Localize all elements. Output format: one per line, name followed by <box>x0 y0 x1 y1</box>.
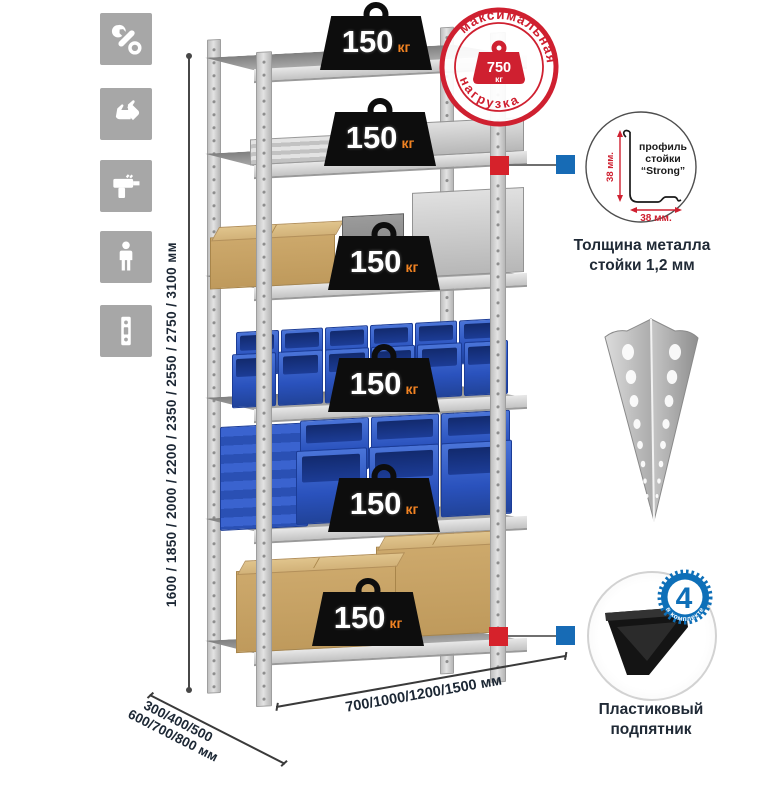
gloves-icon <box>100 88 152 140</box>
quantity-badge: 4 в комплекте <box>656 568 714 626</box>
corner-post-image <box>597 307 709 535</box>
callout-leader-top <box>500 164 560 166</box>
shelf-load-badge: 150кг <box>328 478 440 532</box>
svg-text:38 мм.: 38 мм. <box>605 152 616 182</box>
callout-red-square-top <box>490 156 509 175</box>
svg-text:“Strong”: “Strong” <box>641 165 685 177</box>
person-icon <box>100 231 152 283</box>
callout-blue-square-bottom <box>556 626 575 645</box>
height-dimension-line <box>188 56 190 690</box>
drill-icon <box>100 160 152 212</box>
shelf-load-badge: 150кг <box>328 358 440 412</box>
shelf-load-badge: 150кг <box>320 16 432 70</box>
wrench-icon <box>100 13 152 65</box>
rack-post-rear-left <box>207 39 221 694</box>
callout-red-square-bottom <box>489 627 508 646</box>
profile-title: профиль стойки “Strong” <box>639 141 687 177</box>
shelf-load-badge: 150кг <box>312 592 424 646</box>
svg-text:4: 4 <box>676 582 693 615</box>
shelf-load-badge: 150кг <box>328 236 440 290</box>
perforated-post-icon <box>100 305 152 357</box>
callout-leader-bottom <box>500 635 560 637</box>
product-infographic: { "colors": { "accent_red": "#d6222b", "… <box>0 0 765 765</box>
svg-text:кг: кг <box>495 74 503 84</box>
callout-blue-square-top <box>556 155 575 174</box>
plastic-foot-caption: Пластиковый подпятник <box>576 700 726 740</box>
svg-text:профиль: профиль <box>639 141 687 153</box>
shelf-load-badge: 150кг <box>324 112 436 166</box>
profile-caption: Толщина металла стойки 1,2 мм <box>566 236 718 276</box>
rack-post-front-left <box>256 51 272 707</box>
svg-text:38 мм.: 38 мм. <box>640 213 672 224</box>
height-dimension-label: 1600 / 1850 / 2000 / 2200 / 2350 / 2550 … <box>158 158 184 692</box>
post-profile-detail: 38 мм. 38 мм. профиль стойки “Strong” <box>584 110 698 224</box>
cardboard-box <box>210 231 335 290</box>
svg-text:стойки: стойки <box>645 153 680 165</box>
